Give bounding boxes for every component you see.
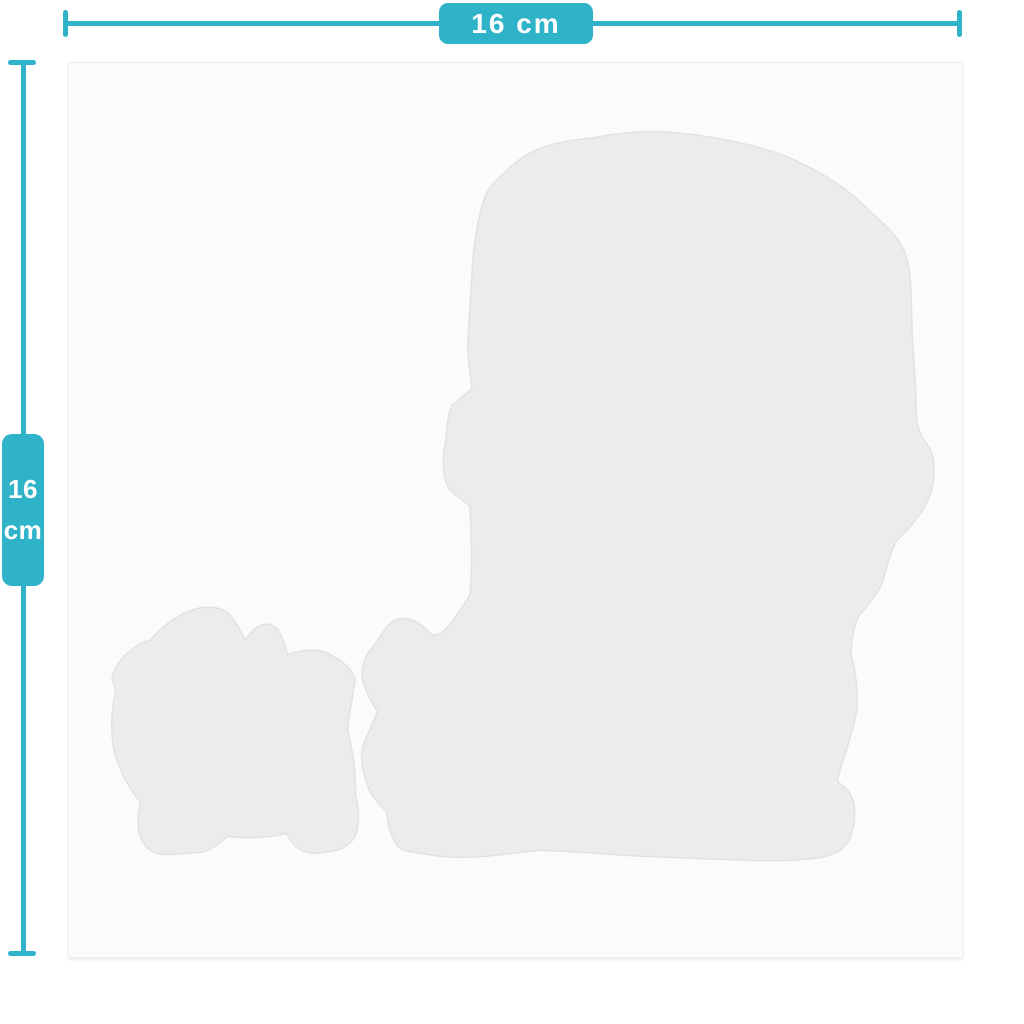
height-dimension-value: 16 — [8, 474, 38, 505]
height-dimension-bottom-tick — [8, 951, 36, 956]
large-character-silhouette — [362, 132, 934, 861]
dimension-figure: 16 cm 16 cm — [0, 0, 1024, 1024]
sticker-sheet — [68, 62, 963, 958]
height-dimension-badge: 16 cm — [2, 434, 44, 586]
sticker-silhouettes — [69, 63, 962, 957]
width-dimension-left-tick — [63, 10, 68, 37]
width-dimension-label: 16 cm — [471, 8, 560, 40]
height-dimension-top-tick — [8, 60, 36, 65]
width-dimension-badge: 16 cm — [439, 3, 593, 44]
height-dimension-unit: cm — [4, 515, 43, 546]
width-dimension-right-tick — [957, 10, 962, 37]
small-character-silhouette — [112, 607, 359, 854]
